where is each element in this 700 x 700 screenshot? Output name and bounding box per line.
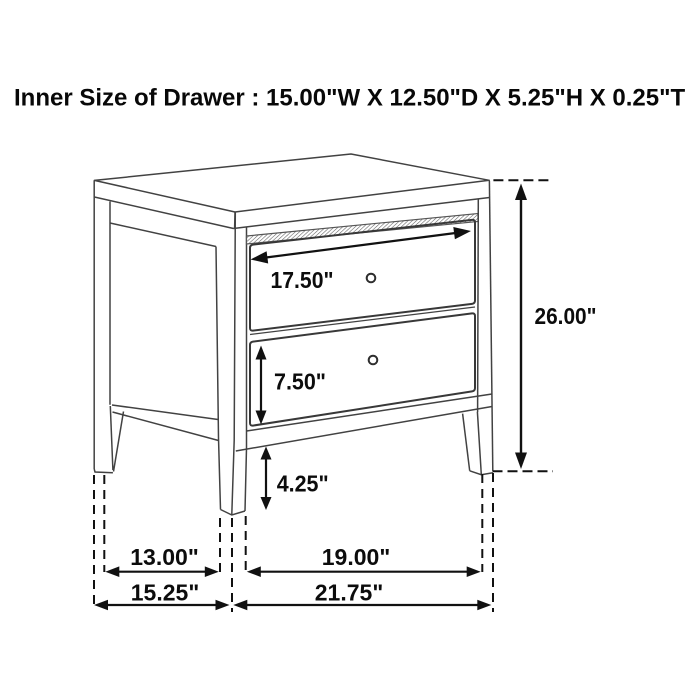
svg-text:Inner Size of Drawer : 15.00"W: Inner Size of Drawer : 15.00"W X 12.50"D…: [14, 85, 685, 112]
svg-text:17.50": 17.50": [271, 267, 334, 293]
svg-text:7.50": 7.50": [274, 369, 326, 395]
svg-text:26.00": 26.00": [535, 303, 597, 329]
svg-text:15.25": 15.25": [131, 580, 199, 606]
svg-text:4.25": 4.25": [277, 471, 329, 497]
svg-text:13.00": 13.00": [130, 544, 198, 570]
svg-text:21.75": 21.75": [315, 580, 383, 606]
svg-text:19.00": 19.00": [322, 544, 390, 570]
